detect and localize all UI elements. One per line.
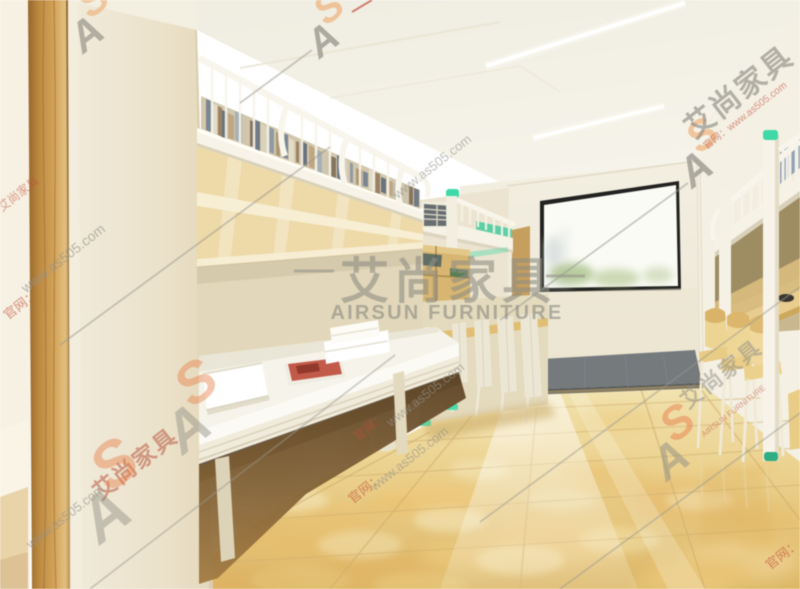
svg-text:AIRSUN FURNITURE: AIRSUN FURNITURE — [331, 302, 564, 324]
svg-text:艾尚家具: 艾尚家具 — [340, 255, 556, 309]
